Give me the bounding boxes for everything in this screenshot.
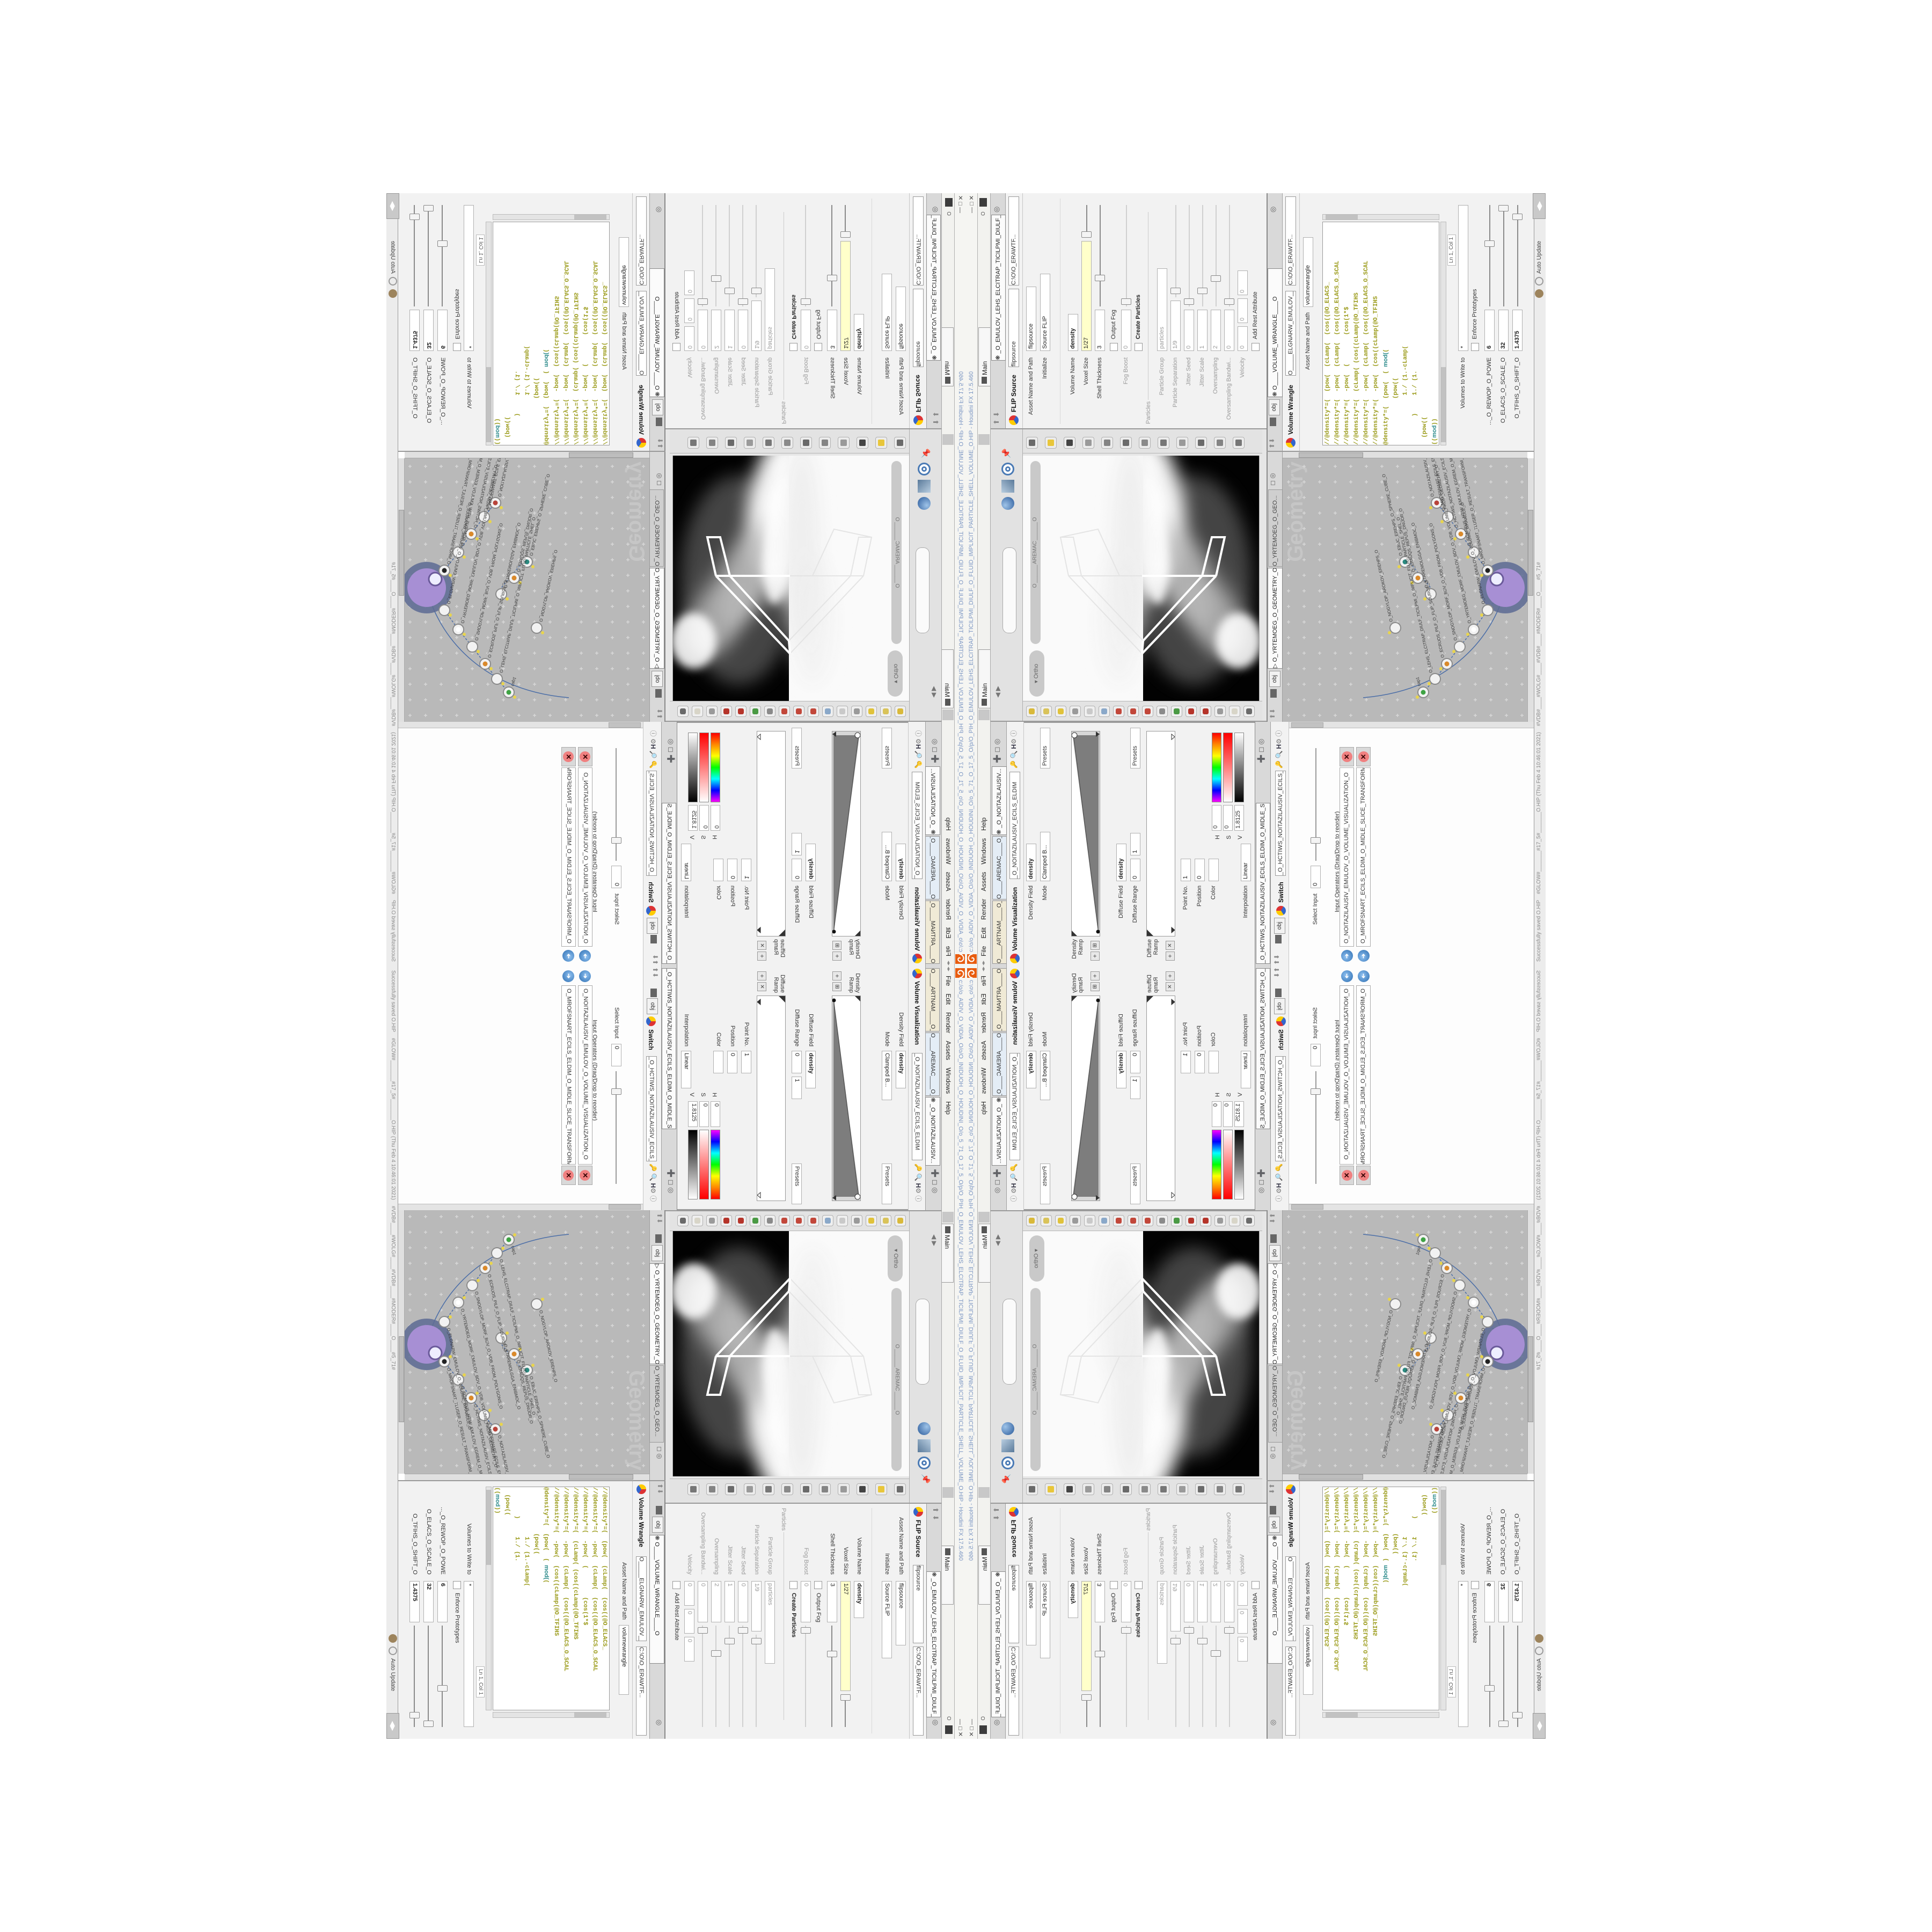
svg-text:O_NOGYLOP_AROKOV_EREHPS_O: O_NOGYLOP_AROKOV_EREHPS_O [538, 1310, 558, 1383]
svg-text:cap1: cap1 [510, 676, 517, 686]
svg-text:O_NOGYLOP_AROKOV_EREHPS_O: O_NOGYLOP_AROKOV_EREHPS_O [538, 550, 558, 623]
svg-text:cap1: cap1 [510, 1246, 517, 1256]
svg-text:O_NOITAZILAUSIV_EMULOV_O_VOLUM: O_NOITAZILAUSIV_EMULOV_O_VOLUME_VISUALIZ… [1404, 458, 1435, 497]
svg-text:O_NOITAZILAUSIV_EMULOV_O_VOLUM: O_NOITAZILAUSIV_EMULOV_O_VOLUME_VISUALIZ… [1404, 1435, 1435, 1474]
svg-text:O_NOITAZILAUSIV_EMULOV_O_VOLUM: O_NOITAZILAUSIV_EMULOV_O_VOLUME_VISUALIZ… [497, 1435, 528, 1474]
svg-text:cap1: cap1 [1415, 676, 1422, 686]
svg-text:O_NOGYLOP_AROKOV_EREHPS_O: O_NOGYLOP_AROKOV_EREHPS_O [1374, 550, 1394, 623]
svg-text:O_NOGYLOP_AROKOV_EREHPS_O: O_NOGYLOP_AROKOV_EREHPS_O [1374, 1310, 1394, 1383]
svg-text:O_NOITAZILAUSIV_EMULOV_O_VOLUM: O_NOITAZILAUSIV_EMULOV_O_VOLUME_VISUALIZ… [497, 458, 528, 497]
svg-text:cap1: cap1 [1415, 1246, 1422, 1256]
